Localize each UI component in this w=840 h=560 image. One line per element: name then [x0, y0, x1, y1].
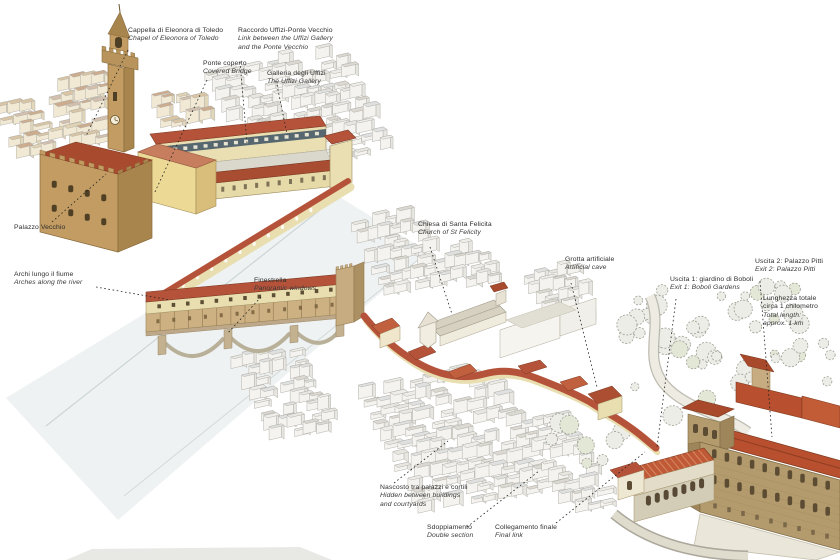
label-line: Finestrella [254, 277, 316, 285]
label-line: Hidden between buildings [380, 492, 468, 500]
label-chiesa: Chiesa di Santa Felicita Church of St Fe… [418, 221, 492, 238]
quay-strip [66, 547, 332, 560]
label-line: Uscita 1: giardino di Boboli [670, 276, 753, 284]
label-line: Cappella di Eleonora di Toledo [128, 27, 223, 35]
label-line: Sdoppiamento [427, 524, 473, 532]
label-finestrella: Finestrella Panoramic windows [254, 277, 316, 294]
label-line: approx. 1 km [763, 320, 818, 328]
label-uscita2: Uscita 2: Palazzo Pitti Exit 2: Palazzo … [755, 258, 823, 275]
label-line: Raccordo Uffizi-Ponte Vecchio [238, 27, 333, 35]
label-lunghezza: Lunghezza totale circa 1 chilometro Tota… [763, 295, 818, 329]
label-line: Double section [427, 532, 473, 540]
label-line: circa 1 chilometro [763, 303, 818, 311]
label-line: Grotta artificiale [565, 256, 614, 264]
label-line: Artificial cave [565, 264, 614, 272]
label-line: Archi lungo il fiume [14, 271, 82, 279]
label-line: Panoramic windows [254, 285, 316, 293]
label-line: and courtyards [380, 501, 468, 509]
label-line: Link between the Uffizi Gallery [238, 35, 333, 43]
label-line: Covered Bridge [203, 68, 252, 76]
vasari-corridor-diagram: Cappella di Eleonora di Toledo Chapel of… [0, 0, 840, 560]
label-ponte-coperto: Ponte coperto Covered Bridge [203, 60, 252, 77]
label-line: Chapel of Eleonora of Toledo [128, 35, 223, 43]
label-archi: Archi lungo il fiume Arches along the ri… [14, 271, 82, 288]
label-line: Exit 1: Boboli Gardens [670, 284, 753, 292]
label-line: and the Ponte Vecchio [238, 44, 333, 52]
label-line: Collegamento finale [495, 524, 557, 532]
label-line: Nascosto tra palazzi e cortili [380, 484, 468, 492]
label-sdoppiamento: Sdoppiamento Double section [427, 524, 473, 541]
label-line: Total length: [763, 312, 818, 320]
label-line: Church of St Felicity [418, 229, 492, 237]
label-line: Palazzo Vecchio [14, 224, 65, 232]
label-galleria: Galleria degli Uffizi The Uffizi Gallery [267, 70, 326, 87]
label-line: The Uffizi Gallery [267, 78, 326, 86]
label-nascosto: Nascosto tra palazzi e cortili Hidden be… [380, 484, 468, 509]
palazzo-pitti-building [610, 354, 840, 560]
label-uscita1: Uscita 1: giardino di Boboli Exit 1: Bob… [670, 276, 753, 293]
label-line: Chiesa di Santa Felicita [418, 221, 492, 229]
label-palazzo-vecchio: Palazzo Vecchio [14, 224, 65, 232]
label-collegamento: Collegamento finale Final link [495, 524, 557, 541]
label-line: Exit 2: Palazzo Pitti [755, 266, 823, 274]
label-raccordo: Raccordo Uffizi-Ponte Vecchio Link betwe… [238, 27, 333, 52]
label-grotta: Grotta artificiale Artificial cave [565, 256, 614, 273]
arno-river [6, 196, 428, 520]
label-line: Ponte coperto [203, 60, 252, 68]
label-line: Final link [495, 532, 557, 540]
label-cappella: Cappella di Eleonora di Toledo Chapel of… [128, 27, 223, 44]
label-line: Galleria degli Uffizi [267, 70, 326, 78]
label-line: Uscita 2: Palazzo Pitti [755, 258, 823, 266]
label-line: Lunghezza totale [763, 295, 818, 303]
label-line: Arches along the river [14, 279, 82, 287]
